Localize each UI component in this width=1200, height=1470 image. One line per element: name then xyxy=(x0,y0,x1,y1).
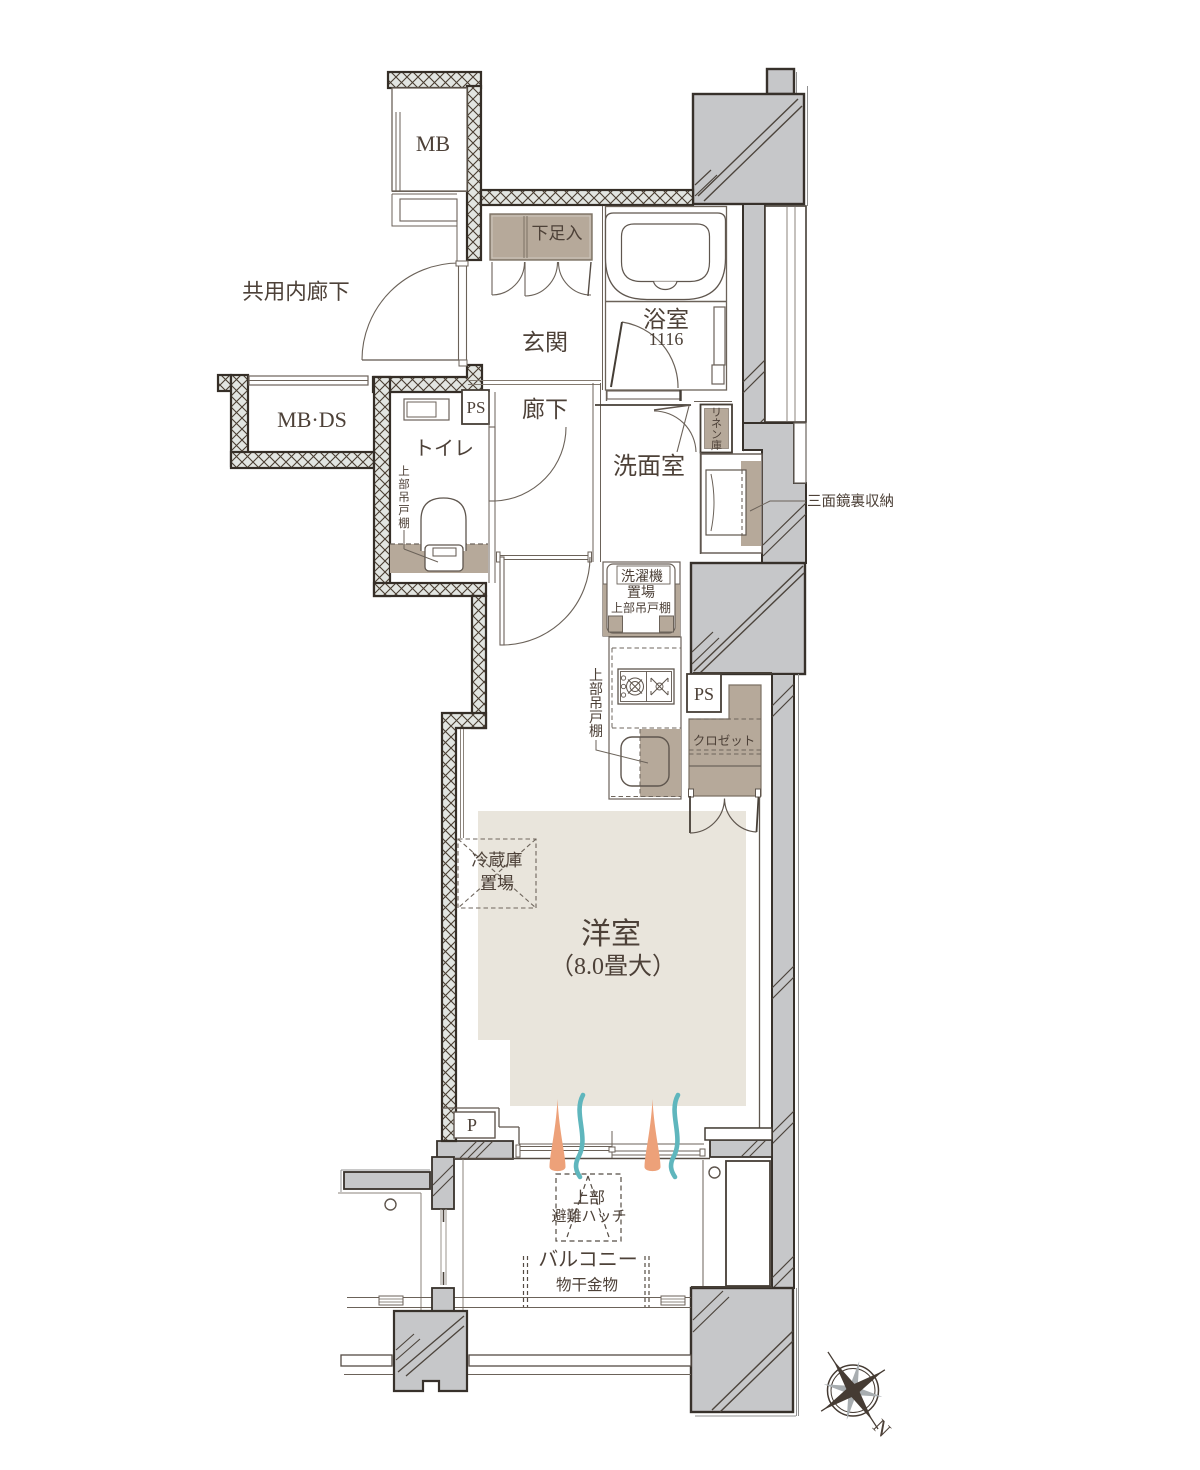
svg-text:下足入: 下足入 xyxy=(532,224,583,243)
svg-text:MB: MB xyxy=(416,131,450,156)
svg-text:バルコニー: バルコニー xyxy=(538,1249,638,1271)
svg-text:三面鏡裏収納: 三面鏡裏収納 xyxy=(807,492,894,510)
svg-text:MB·DS: MB·DS xyxy=(277,407,347,432)
svg-text:避難ハッチ: 避難ハッチ xyxy=(551,1208,626,1225)
svg-text:冷蔵庫: 冷蔵庫 xyxy=(472,851,523,870)
svg-text:置場: 置場 xyxy=(627,585,655,601)
svg-text:PS: PS xyxy=(467,398,486,417)
svg-text:PS: PS xyxy=(694,684,714,704)
svg-text:1116: 1116 xyxy=(649,329,684,349)
svg-text:廊下: 廊下 xyxy=(522,397,568,422)
svg-text:上部: 上部 xyxy=(573,1189,605,1207)
svg-text:物干金物: 物干金物 xyxy=(556,1276,618,1294)
svg-text:洗面室: 洗面室 xyxy=(613,453,685,480)
svg-text:（8.0畳大）: （8.0畳大） xyxy=(550,953,676,980)
svg-text:P: P xyxy=(467,1115,477,1135)
svg-text:トイレ: トイレ xyxy=(414,438,474,460)
svg-text:玄関: 玄関 xyxy=(522,330,568,355)
svg-text:上部吊戸棚: 上部吊戸棚 xyxy=(611,600,671,615)
svg-text:洗濯機: 洗濯機 xyxy=(621,569,663,585)
svg-text:上部吊戸棚: 上部吊戸棚 xyxy=(398,465,410,530)
svg-text:洋室: 洋室 xyxy=(581,918,641,951)
svg-text:上部吊戸棚: 上部吊戸棚 xyxy=(589,668,603,740)
svg-text:共用内廊下: 共用内廊下 xyxy=(242,280,350,304)
svg-text:置場: 置場 xyxy=(480,874,514,893)
svg-text:クロゼット: クロゼット xyxy=(693,734,756,748)
svg-text:リネン庫: リネン庫 xyxy=(711,407,722,452)
